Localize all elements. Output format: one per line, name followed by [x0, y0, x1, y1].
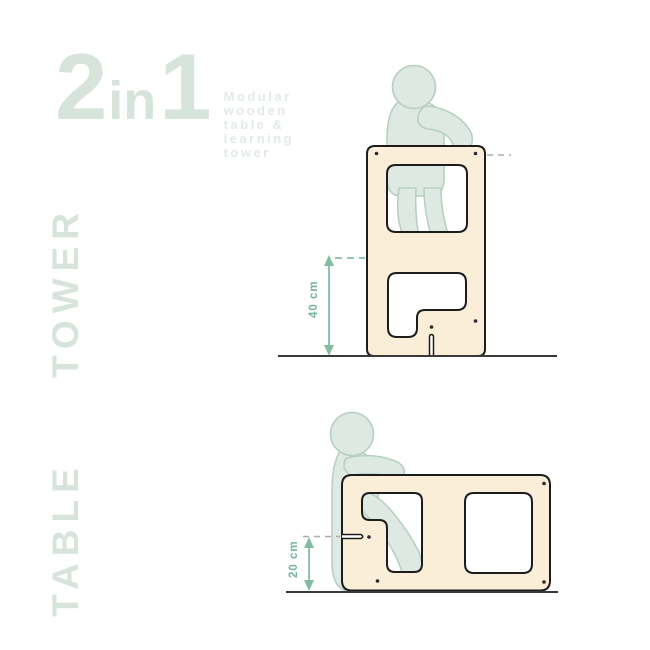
screw-dot [430, 325, 434, 329]
child-head [393, 66, 436, 109]
arrowhead-up-icon [304, 537, 314, 548]
table-dimension-text: 20 cm [288, 540, 300, 578]
table-dimension: 20 cm [288, 537, 314, 591]
tower-illustration: 40 cm [268, 53, 568, 365]
infographic-canvas: 2 in 1 Modular wooden table & learning t… [0, 0, 650, 650]
brand-header: 2 in 1 Modular wooden table & learning t… [55, 40, 294, 178]
arrowhead-down-icon [324, 345, 334, 356]
screw-dot [474, 319, 478, 323]
screw-dot [474, 152, 478, 156]
brand-digit-2: 2 [55, 40, 105, 134]
screw-dot [376, 579, 380, 583]
screw-dot [375, 152, 379, 156]
child-head [331, 413, 374, 456]
table-illustration: 20 cm [266, 396, 600, 642]
table-side-slot [342, 535, 363, 539]
brand-in: in [105, 74, 159, 128]
screw-dot [367, 535, 371, 539]
arrowhead-down-icon [304, 580, 314, 591]
brand-digit-1: 1 [159, 40, 209, 134]
screw-dot [542, 482, 546, 486]
table-label-text: TABLE [45, 461, 87, 617]
tower-label-text: TOWER [45, 206, 87, 378]
section-label-table: TABLE [44, 455, 88, 623]
tower-bottom-slot [430, 335, 434, 357]
tower-dimension-text: 40 cm [308, 280, 320, 318]
table-panel [342, 475, 550, 591]
brand-2in1: 2 in 1 [55, 40, 210, 134]
screw-dot [542, 580, 546, 584]
arrowhead-up-icon [324, 255, 334, 266]
tower-dimension: 40 cm [308, 255, 365, 356]
section-label-tower: TOWER [44, 208, 88, 376]
